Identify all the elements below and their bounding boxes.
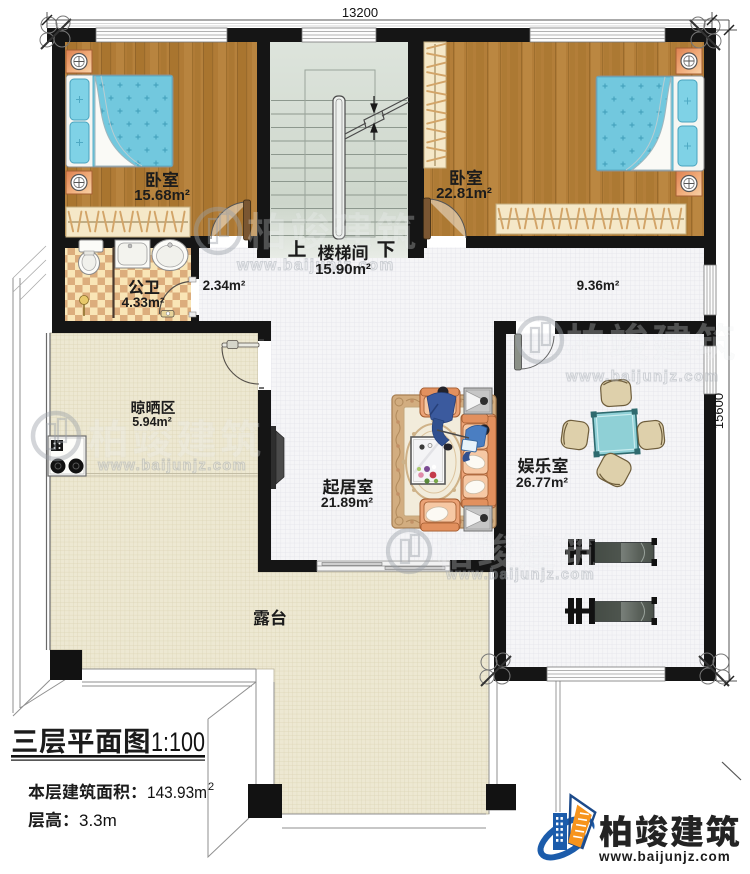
svg-text:21.89m²: 21.89m² [321,494,373,510]
svg-text:9.36m²: 9.36m² [577,278,620,293]
svg-text:13200: 13200 [342,5,378,20]
svg-text:www.baijunjz.com: www.baijunjz.com [565,368,719,385]
svg-text:5.94m²: 5.94m² [132,415,172,429]
svg-text:1:100: 1:100 [151,727,205,757]
svg-text:3.3m: 3.3m [79,811,117,830]
svg-text:15600: 15600 [711,393,726,429]
svg-text:2: 2 [208,781,214,793]
svg-text:2.34m²: 2.34m² [203,278,246,293]
svg-text:www.baijunjz.com: www.baijunjz.com [598,849,731,864]
svg-text:22.81m²: 22.81m² [436,185,492,202]
svg-text:15.68m²: 15.68m² [134,187,190,204]
svg-text:26.77m²: 26.77m² [516,474,568,490]
svg-text:www.baijunjz.com: www.baijunjz.com [445,567,595,583]
svg-text:www.baijunjz.com: www.baijunjz.com [97,458,247,474]
svg-text:4.33m²: 4.33m² [122,295,165,310]
svg-text:143.93m: 143.93m [147,783,207,802]
svg-text:15.90m²: 15.90m² [315,261,371,278]
